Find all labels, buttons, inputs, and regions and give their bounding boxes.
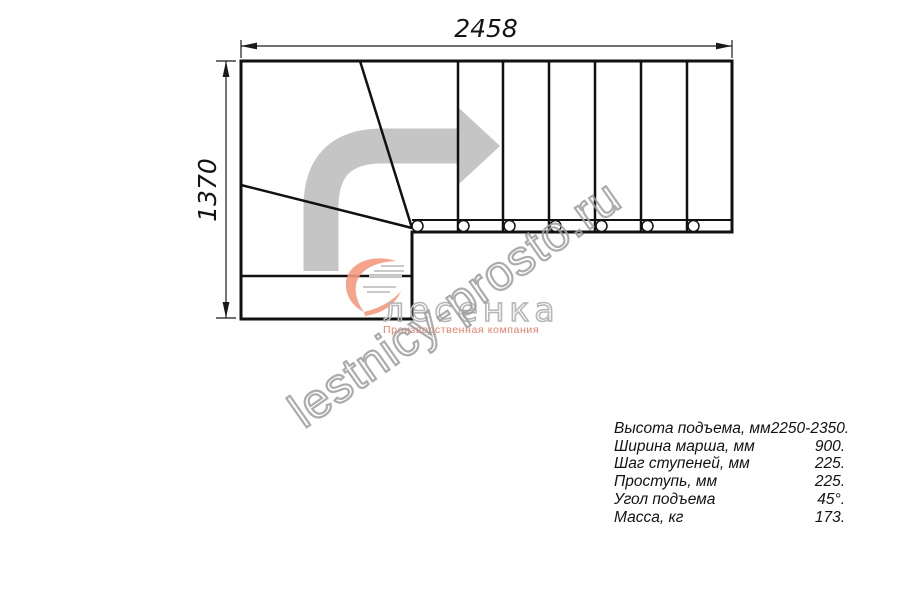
baluster	[504, 221, 515, 232]
spec-row: Угол подъема 45°.	[614, 491, 845, 509]
spec-label: Масса, кг	[614, 509, 683, 527]
dimension-arrowhead	[223, 61, 230, 77]
spec-value: 45°.	[817, 491, 845, 509]
spec-label: Шаг ступеней, мм	[614, 455, 750, 473]
spec-label: Проступь, мм	[614, 473, 717, 491]
spec-label: Ширина марша, мм	[614, 438, 755, 456]
spec-row: Высота подъема, мм 2250-2350.	[614, 420, 845, 438]
baluster	[688, 221, 699, 232]
dimension-arrowhead	[223, 302, 230, 318]
logo-speed-lines	[363, 266, 404, 292]
direction-arrow-head	[459, 108, 500, 184]
spec-value: 173.	[815, 509, 845, 527]
staircase-drawing-page: 2458 1370 лесенка Производственная компа…	[0, 0, 900, 600]
spec-value: 900.	[815, 438, 845, 456]
baluster	[412, 221, 423, 232]
logo-tagline-text: Производственная компания	[383, 324, 539, 336]
spec-row: Проступь, мм 225.	[614, 473, 845, 491]
dimension-arrowhead	[716, 43, 732, 50]
specs-table: Высота подъема, мм 2250-2350. Ширина мар…	[614, 420, 845, 526]
baluster	[458, 221, 469, 232]
baluster	[642, 221, 653, 232]
dimension-arrowhead	[241, 43, 257, 50]
spec-row: Шаг ступеней, мм 225.	[614, 455, 845, 473]
dimension-width	[241, 40, 732, 58]
balusters	[412, 221, 699, 232]
spec-row: Масса, кг 173.	[614, 509, 845, 527]
baluster	[550, 221, 561, 232]
spec-label: Угол подъема	[614, 491, 715, 509]
spec-row: Ширина марша, мм 900.	[614, 438, 845, 456]
dimension-height	[216, 61, 236, 318]
spec-value: 225.	[815, 473, 845, 491]
spec-value: 225.	[815, 455, 845, 473]
spec-label: Высота подъема, мм	[614, 420, 771, 438]
baluster	[596, 221, 607, 232]
direction-arrow-shaft	[321, 146, 459, 271]
spec-value: 2250-2350.	[771, 420, 849, 438]
